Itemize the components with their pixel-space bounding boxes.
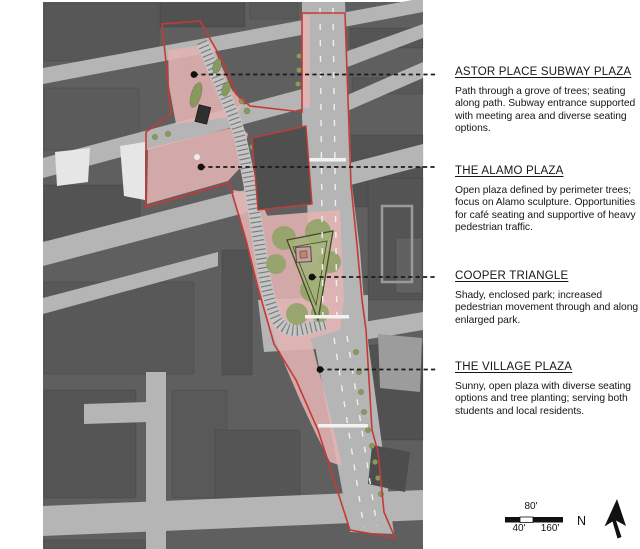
dark-building [368, 445, 410, 492]
annotation-body: Shady, enclosed park; increased pedestri… [455, 290, 640, 327]
scale-label-80: 80' [519, 502, 543, 512]
cooper-union-building [252, 126, 312, 210]
light-building [378, 334, 422, 392]
annotation-alamo-plaza: THE ALAMO PLAZA Open plaza defined by pe… [455, 164, 640, 234]
map-base [43, 0, 423, 549]
north-arrow-icon [605, 499, 627, 539]
monument [296, 247, 312, 263]
annotation-heading: COOPER TRIANGLE [455, 269, 640, 283]
scale-label-160: 160' [536, 524, 564, 534]
annotation-astor-place-subway-plaza: ASTOR PLACE SUBWAY PLAZA Path through a … [455, 65, 640, 135]
annotation-body: Sunny, open plaza with diverse seating o… [455, 381, 640, 418]
scale-label-40: 40' [507, 524, 531, 534]
scale-bar [505, 517, 563, 523]
alamo-sculpture-marker [194, 154, 200, 160]
annotation-heading: ASTOR PLACE SUBWAY PLAZA [455, 65, 640, 79]
annotation-heading: THE ALAMO PLAZA [455, 164, 640, 178]
annotation-village-plaza: THE VILLAGE PLAZA Sunny, open plaza with… [455, 360, 640, 418]
annotation-body: Open plaza defined by perimeter trees; f… [455, 185, 640, 234]
annotation-heading: THE VILLAGE PLAZA [455, 360, 640, 374]
site-plan-page: ASTOR PLACE SUBWAY PLAZA Path through a … [0, 0, 640, 549]
annotation-body: Path through a grove of trees; seating a… [455, 86, 640, 135]
north-label: N [577, 514, 586, 528]
annotation-cooper-triangle: COOPER TRIANGLE Shady, enclosed park; in… [455, 269, 640, 327]
